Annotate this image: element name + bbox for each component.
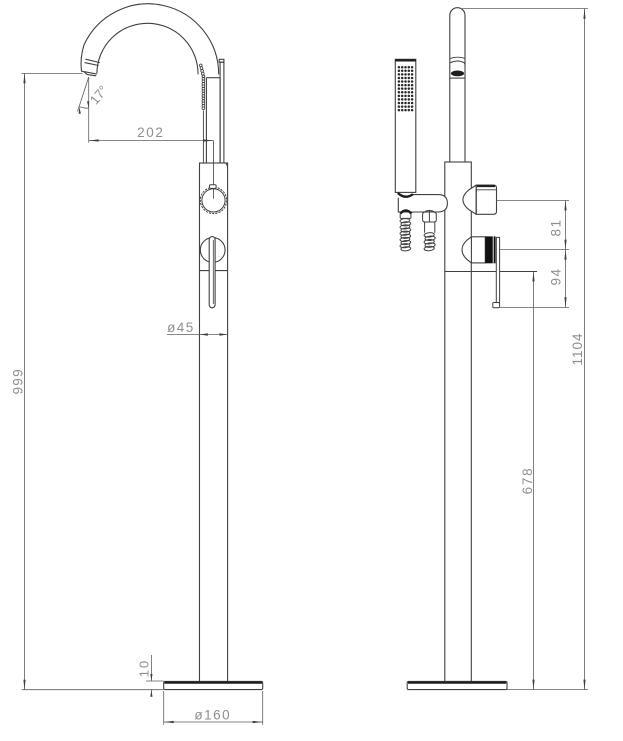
svg-text:10: 10 <box>137 659 152 677</box>
svg-text:202: 202 <box>137 125 164 140</box>
svg-text:ø160: ø160 <box>194 708 231 723</box>
svg-text:17°: 17° <box>87 83 111 108</box>
svg-text:81: 81 <box>549 218 564 236</box>
svg-text:678: 678 <box>520 467 535 495</box>
svg-text:94: 94 <box>549 267 564 285</box>
svg-text:ø45: ø45 <box>167 320 194 335</box>
svg-text:1104: 1104 <box>570 332 585 365</box>
svg-text:999: 999 <box>11 368 26 394</box>
